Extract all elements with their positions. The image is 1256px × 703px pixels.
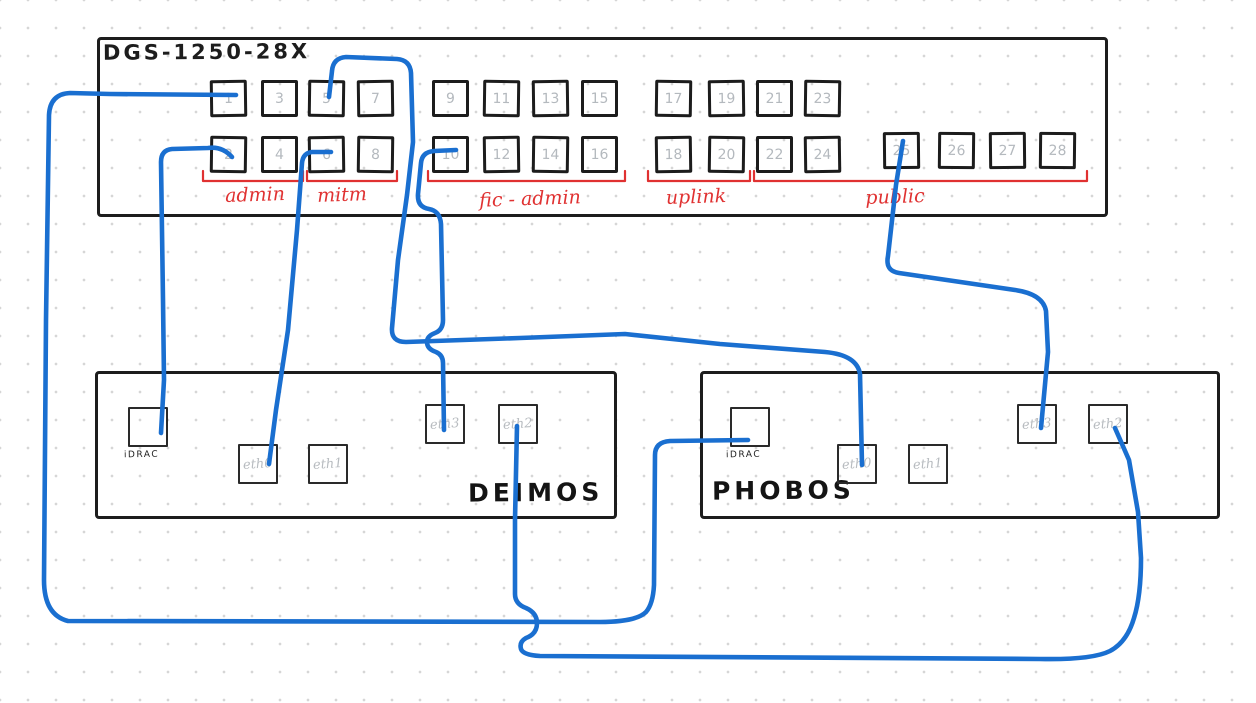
switch-port-11: 11: [483, 80, 521, 118]
server-port-label-deimos-eth3: eth3: [430, 415, 461, 432]
group-label-fic-admin: fic - admin: [479, 186, 581, 212]
switch-port-21: 21: [756, 80, 793, 117]
server-port-label-deimos-idrac: iDRAC: [124, 450, 159, 461]
switch-port-5: 5: [308, 80, 346, 118]
server-port-phobos-eth1: eth1: [908, 444, 948, 484]
switch-port-14: 14: [532, 136, 570, 174]
switch-port-13: 13: [532, 80, 570, 118]
server-port-phobos-eth0: eth0: [837, 444, 877, 484]
switch-port-27: 27: [989, 132, 1026, 169]
switch-port-6: 6: [308, 136, 346, 174]
group-label-uplink: uplink: [665, 185, 726, 209]
diagram-canvas: { "diagram_type": "hand-drawn network ca…: [0, 0, 1256, 703]
switch-port-9: 9: [432, 80, 469, 117]
server-port-deimos-eth3: eth3: [425, 404, 465, 444]
server-port-phobos-eth2: eth2: [1088, 404, 1128, 444]
server-port-label-phobos-idrac: iDRAC: [726, 450, 761, 461]
switch-port-2: 2: [210, 136, 248, 174]
server-port-label-deimos-eth0: eth0: [243, 455, 274, 472]
server-port-phobos-idrac: [730, 407, 770, 447]
server-port-label-phobos-eth3: eth3: [1022, 415, 1053, 432]
group-label-public: public: [865, 185, 925, 209]
server-port-label-deimos-eth2: eth2: [503, 415, 534, 432]
server-port-label-deimos-eth1: eth1: [313, 455, 344, 472]
switch-port-23: 23: [804, 80, 842, 118]
diagram-elements-layer: 1357911131517192123246810121416182022242…: [0, 0, 1256, 703]
group-label-admin: admin: [225, 183, 286, 207]
server-port-deimos-eth0: eth0: [238, 444, 278, 484]
switch-port-28: 28: [1039, 132, 1076, 169]
switch-port-15: 15: [581, 80, 618, 117]
switch-port-24: 24: [804, 136, 842, 174]
server-port-deimos-eth1: eth1: [308, 444, 348, 484]
switch-port-1: 1: [210, 80, 248, 118]
switch-port-26: 26: [938, 132, 975, 169]
switch-port-25: 25: [883, 132, 920, 169]
switch-port-10: 10: [432, 136, 469, 173]
switch-port-19: 19: [708, 80, 746, 118]
switch-port-4: 4: [261, 136, 298, 173]
switch-port-20: 20: [708, 136, 746, 174]
server-port-deimos-eth2: eth2: [498, 404, 538, 444]
server-port-label-phobos-eth1: eth1: [913, 455, 944, 472]
group-label-mitm: mitm: [317, 183, 367, 207]
server-port-phobos-eth3: eth3: [1017, 404, 1057, 444]
switch-port-17: 17: [655, 80, 693, 118]
switch-port-3: 3: [261, 80, 298, 117]
switch-port-7: 7: [357, 80, 395, 118]
server-port-deimos-idrac: [128, 407, 168, 447]
switch-port-16: 16: [581, 136, 618, 173]
switch-port-22: 22: [756, 136, 793, 173]
server-port-label-phobos-eth2: eth2: [1093, 415, 1124, 432]
server-port-label-phobos-eth0: eth0: [842, 455, 873, 472]
switch-port-18: 18: [655, 136, 693, 174]
switch-port-12: 12: [483, 136, 521, 174]
switch-port-8: 8: [357, 136, 395, 174]
